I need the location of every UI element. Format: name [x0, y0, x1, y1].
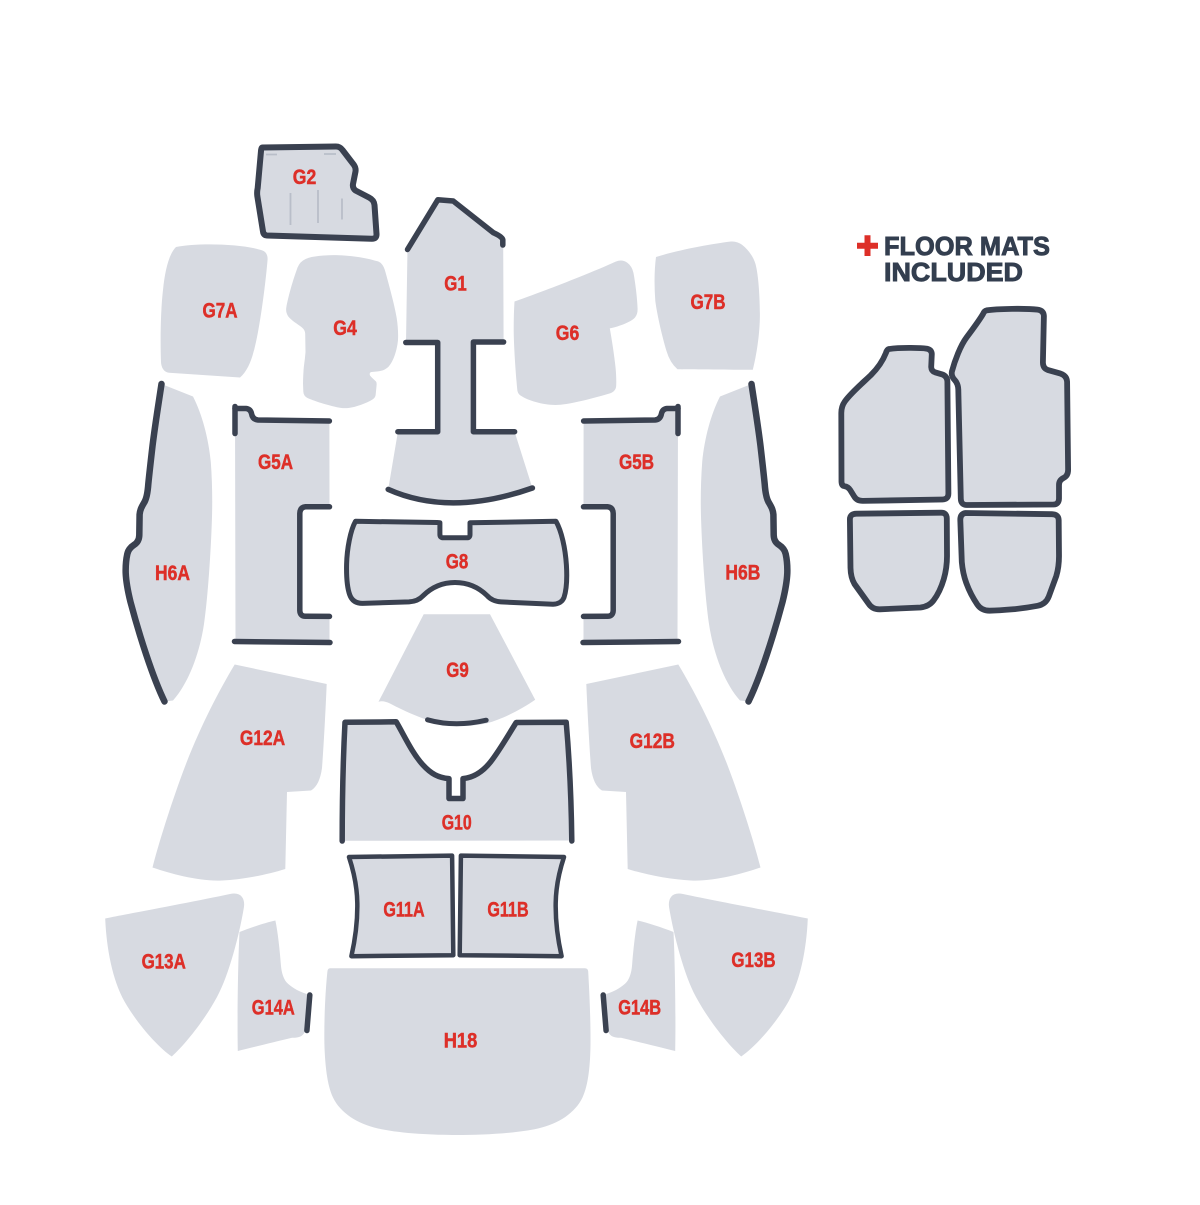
svg-text:INCLUDED: INCLUDED — [884, 257, 1023, 287]
svg-text:G12A: G12A — [240, 726, 285, 750]
svg-text:G14A: G14A — [252, 996, 295, 1020]
svg-text:H6A: H6A — [155, 561, 190, 585]
svg-text:G7A: G7A — [203, 299, 238, 323]
svg-text:H18: H18 — [444, 1029, 478, 1053]
svg-text:G10: G10 — [442, 811, 472, 835]
svg-text:G13A: G13A — [142, 949, 186, 973]
svg-text:G2: G2 — [293, 165, 317, 189]
svg-text:G13B: G13B — [731, 948, 775, 972]
svg-text:G5B: G5B — [619, 450, 654, 474]
svg-text:H6B: H6B — [725, 561, 760, 585]
svg-text:G11B: G11B — [487, 898, 528, 922]
svg-text:G8: G8 — [446, 550, 469, 574]
svg-text:G6: G6 — [556, 321, 580, 345]
svg-text:G5A: G5A — [258, 450, 293, 474]
svg-text:G9: G9 — [446, 658, 469, 682]
svg-text:G11A: G11A — [383, 898, 424, 922]
svg-text:G14B: G14B — [618, 996, 661, 1020]
svg-text:G7B: G7B — [691, 290, 726, 314]
svg-text:G1: G1 — [444, 272, 467, 296]
svg-text:G4: G4 — [333, 316, 357, 340]
svg-text:G12B: G12B — [630, 729, 675, 753]
